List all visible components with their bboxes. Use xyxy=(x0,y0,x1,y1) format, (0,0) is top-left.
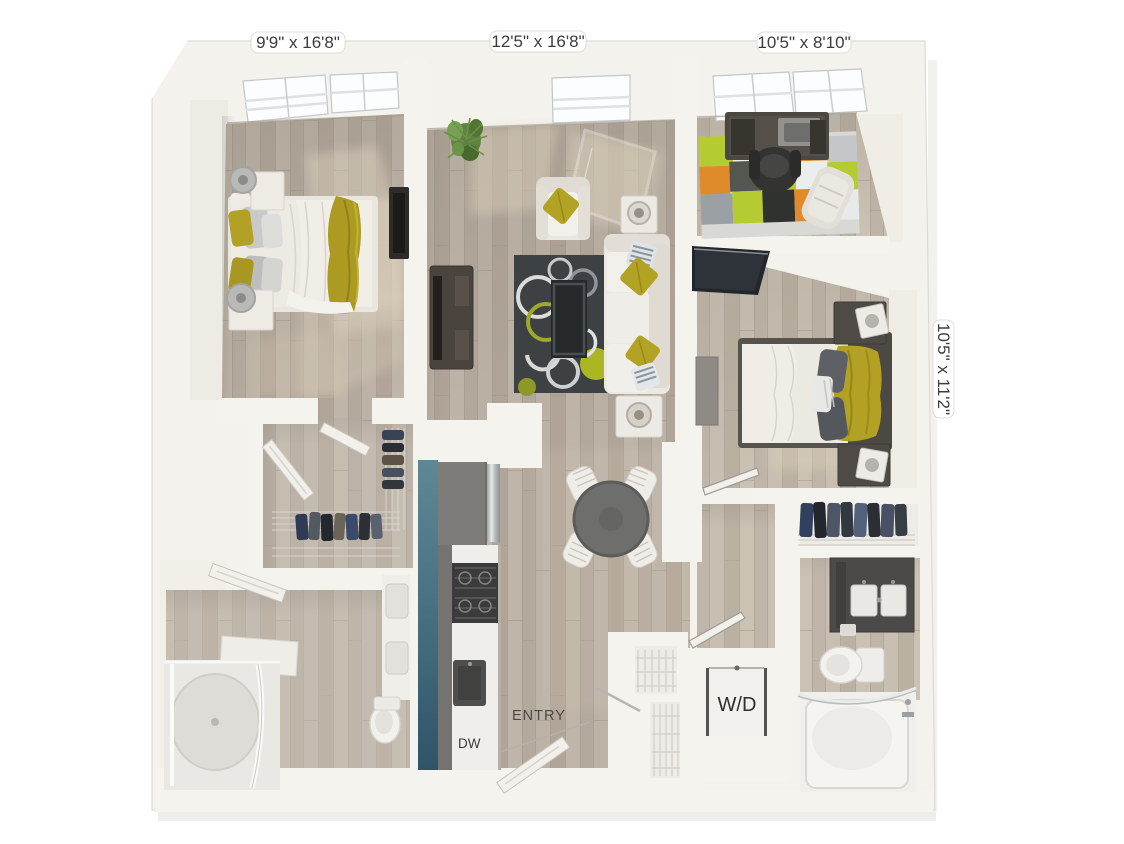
svg-text:W/D: W/D xyxy=(718,694,757,716)
svg-text:DW: DW xyxy=(458,736,481,751)
svg-text:ENTRY: ENTRY xyxy=(512,708,566,724)
svg-text:12'5" x 16'8": 12'5" x 16'8" xyxy=(491,32,584,51)
svg-text:10'5" x 11'2": 10'5" x 11'2" xyxy=(934,323,953,415)
svg-text:9'9" x 16'8": 9'9" x 16'8" xyxy=(256,33,340,52)
svg-text:10'5" x 8'10": 10'5" x 8'10" xyxy=(757,33,850,52)
